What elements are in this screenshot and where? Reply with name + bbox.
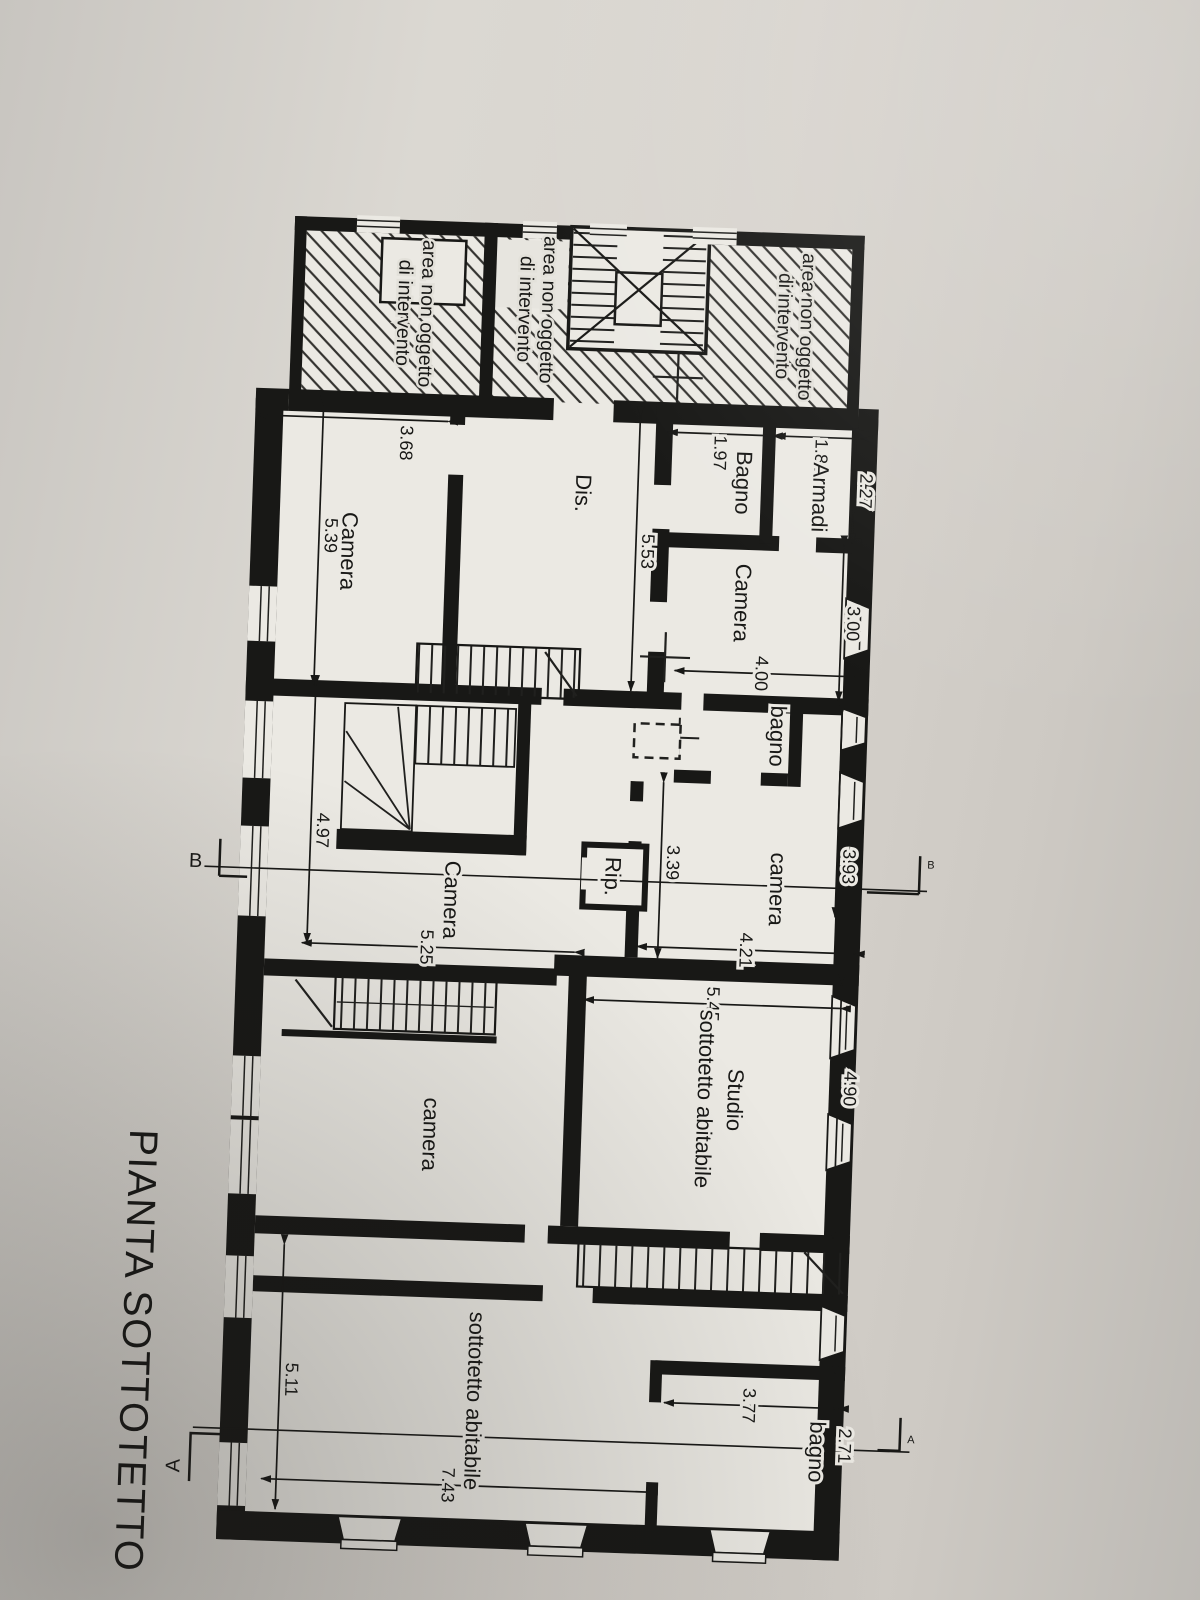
- dim-text: 7.43: [437, 1467, 458, 1503]
- stair-sottotetto: [577, 1243, 847, 1296]
- room-label-camera-c: camera: [417, 1097, 445, 1172]
- dim-text: 5.25: [416, 929, 437, 965]
- wall-bagno-dis-a: [654, 405, 674, 486]
- wall-bagno-mid-right-a: [761, 773, 788, 787]
- wall-camera-mid-bottom-a: [630, 781, 644, 801]
- photographed-floor-plan-sheet: A A B B: [0, 0, 1200, 1600]
- dim-text: 3.39: [662, 845, 683, 881]
- dim-text: 2.27: [855, 473, 876, 509]
- room-label-camera-sw: Camera: [438, 860, 466, 940]
- stair-corridor: [416, 644, 581, 700]
- area-note-2-line2: di intervento: [512, 256, 538, 363]
- dim-text: 4.90: [839, 1071, 860, 1107]
- wall-armadi-camera-a: [816, 537, 861, 554]
- section-label-b-right: B: [927, 859, 935, 871]
- dashed-hatch-box: [634, 723, 681, 759]
- section-label-a-left: A: [162, 1458, 184, 1473]
- section-bracket-a-right: [877, 1417, 900, 1451]
- area-note-1-line2: di intervento: [391, 259, 417, 366]
- room-label-armadi: Armadi: [806, 462, 833, 533]
- dim-text: 5.53: [637, 534, 658, 570]
- room-label-rip: Rip.: [600, 857, 626, 897]
- room-label-bagno-mid: bagno: [764, 705, 791, 767]
- room-label-camera-w: Camera: [335, 512, 363, 592]
- existing-stairwell: [568, 227, 710, 354]
- floor-plan-drawing: A A B B: [0, 0, 1200, 1600]
- wall-bagno-se-bottom-a: [649, 1360, 662, 1402]
- room-label-camera-mid: camera: [764, 852, 792, 927]
- wall-bagno-mid-right-b: [674, 770, 711, 784]
- section-label-a-right: A: [907, 1434, 915, 1446]
- dim-text: 2.71: [834, 1428, 855, 1464]
- dim-text: 4.21: [735, 932, 756, 968]
- plan-title: PIANTA SOTTOTETTO: [106, 1128, 165, 1573]
- wall-bagno-se-bottom-b: [644, 1482, 658, 1542]
- section-label-b-left: B: [189, 850, 203, 872]
- dim-text: 1.97: [710, 435, 731, 471]
- section-bracket-b-right: [867, 854, 920, 894]
- plan-canvas: A A B B: [0, 0, 1200, 1600]
- section-bracket-a-left: [189, 1433, 221, 1482]
- dim-text: 3.77: [738, 1388, 759, 1424]
- room-label-bagno-se: bagno: [803, 1421, 830, 1483]
- dim-text: 4.00: [751, 656, 772, 692]
- room-label-camera-nw: Camera: [729, 563, 757, 643]
- dim-text: 3.93: [838, 849, 859, 885]
- dim-text: 4.97: [312, 812, 333, 848]
- room-label-bagno-nw: Bagno: [730, 451, 757, 515]
- dim-text: 3.00: [843, 606, 864, 642]
- wall-bagno-dis-c: [647, 652, 666, 698]
- stairwell-eye: [615, 272, 663, 326]
- dim-text: 3.68: [396, 425, 417, 461]
- rip-door-gap: [581, 857, 592, 889]
- dim-text: 5.11: [281, 1362, 302, 1396]
- room-label-dis: Dis.: [570, 474, 596, 513]
- wall-camera-w-top-a: [450, 410, 466, 426]
- room-label-studio-line1: Studio: [722, 1068, 749, 1131]
- area-note-3-line2: di intervento: [771, 273, 797, 380]
